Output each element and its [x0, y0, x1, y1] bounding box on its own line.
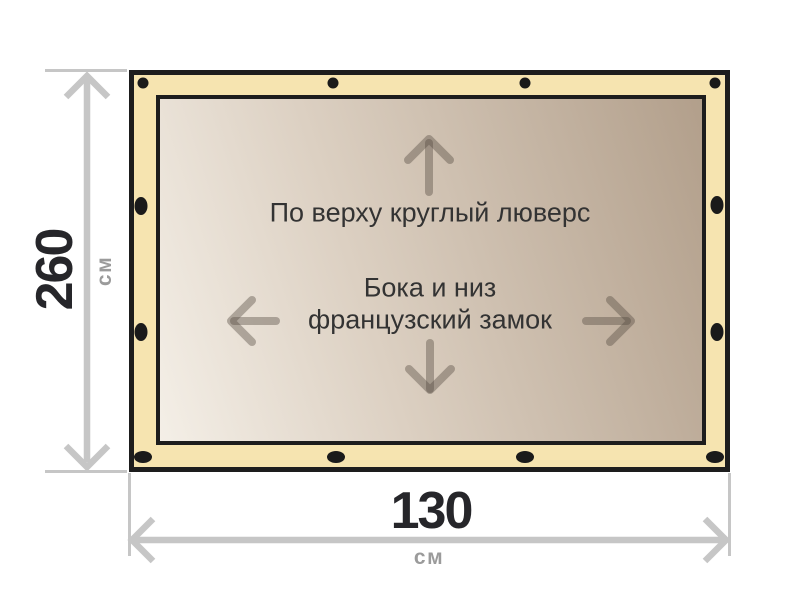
width-dimension-value: 130 — [391, 481, 472, 541]
grommet-icon — [327, 451, 345, 463]
width-arrowhead-left — [132, 519, 153, 561]
banner-dimension-diagram: По верху круглый люверс Бока и низ франц… — [0, 0, 800, 600]
height-dimension-value: 260 — [25, 230, 85, 311]
grommet-icon — [328, 78, 339, 89]
grommet-icon — [135, 323, 148, 341]
height-arrowhead-down — [66, 446, 108, 467]
banner-surface — [156, 95, 706, 445]
height-arrowhead-up — [66, 76, 108, 97]
grommet-icon — [706, 451, 724, 463]
sides-annotation-line1: Бока и низ — [308, 273, 552, 305]
grommet-icon — [711, 196, 724, 214]
width-dimension-unit: см — [414, 546, 444, 570]
top-edge-annotation: По верху круглый люверс — [270, 198, 591, 229]
grommet-icon — [135, 197, 148, 215]
grommet-icon — [516, 451, 534, 463]
sides-annotation-line2: французский замок — [308, 304, 552, 336]
grommet-icon — [138, 78, 149, 89]
sides-annotation: Бока и низ французский замок — [308, 273, 552, 336]
width-arrowhead-right — [705, 519, 726, 561]
grommet-icon — [520, 78, 531, 89]
height-dimension-unit: см — [93, 256, 117, 286]
grommet-icon — [711, 323, 724, 341]
grommet-icon — [134, 451, 152, 463]
grommet-icon — [710, 78, 721, 89]
banner-frame — [129, 70, 730, 472]
